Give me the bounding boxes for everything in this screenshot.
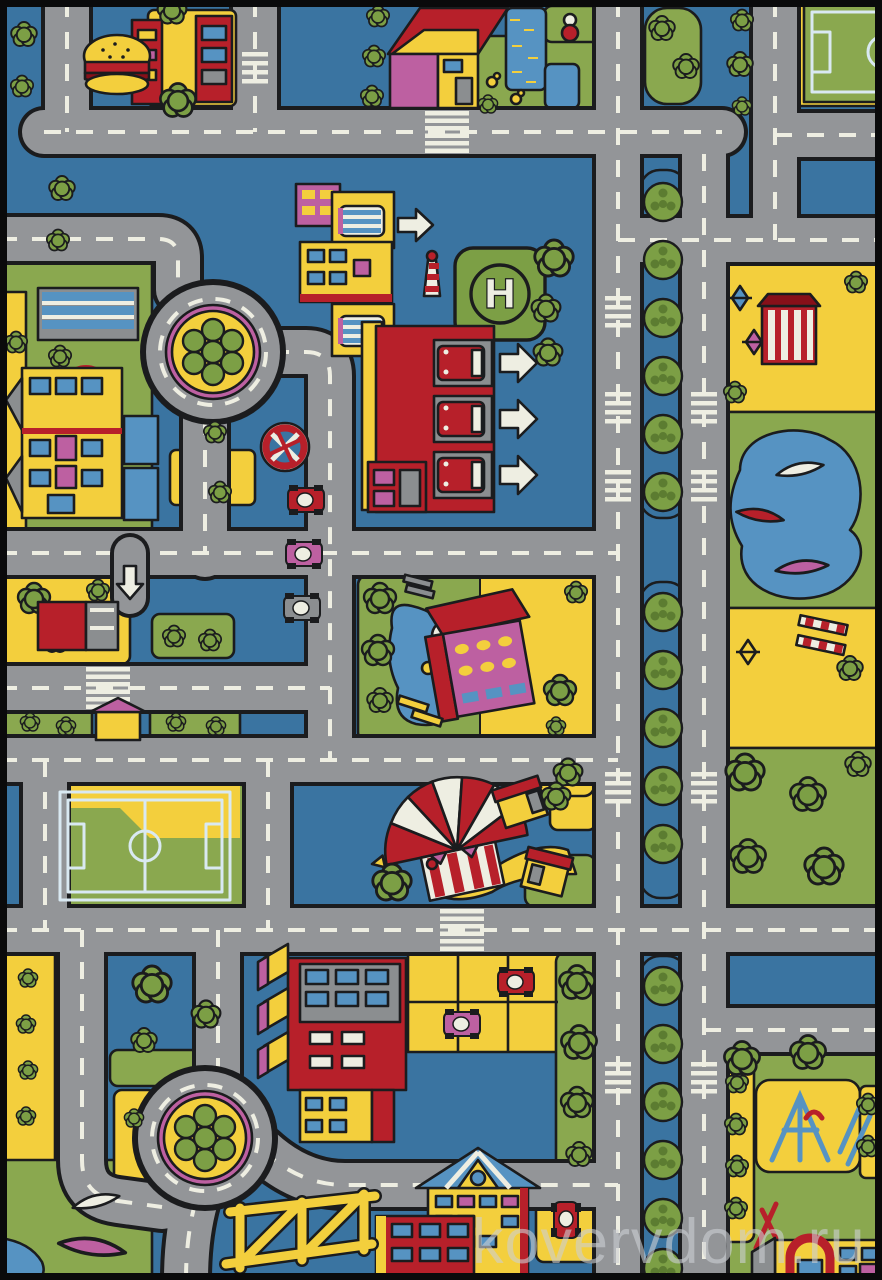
parked-cars (284, 486, 324, 622)
striped-kiosk (758, 294, 820, 364)
burger-icon (84, 35, 150, 94)
truck-bay (434, 340, 492, 386)
helipad-letter: H (483, 272, 516, 318)
bleachers (38, 288, 138, 340)
truck-bay (434, 452, 492, 498)
lighthouse (424, 251, 440, 296)
bus (338, 206, 384, 236)
no-stopping-sign (261, 423, 309, 471)
watermark-text: kovervdom.ru (472, 1207, 866, 1277)
roundabout-bottom (132, 1065, 278, 1211)
red-rowhouse (376, 1216, 474, 1280)
roundabout-top (140, 279, 286, 425)
truck-bay (434, 396, 492, 442)
ball (427, 859, 437, 869)
soccer-field-top-right (790, 0, 882, 106)
annex (368, 462, 426, 512)
play-rug-photo: H (0, 0, 882, 1280)
teddy-bear (562, 14, 578, 41)
